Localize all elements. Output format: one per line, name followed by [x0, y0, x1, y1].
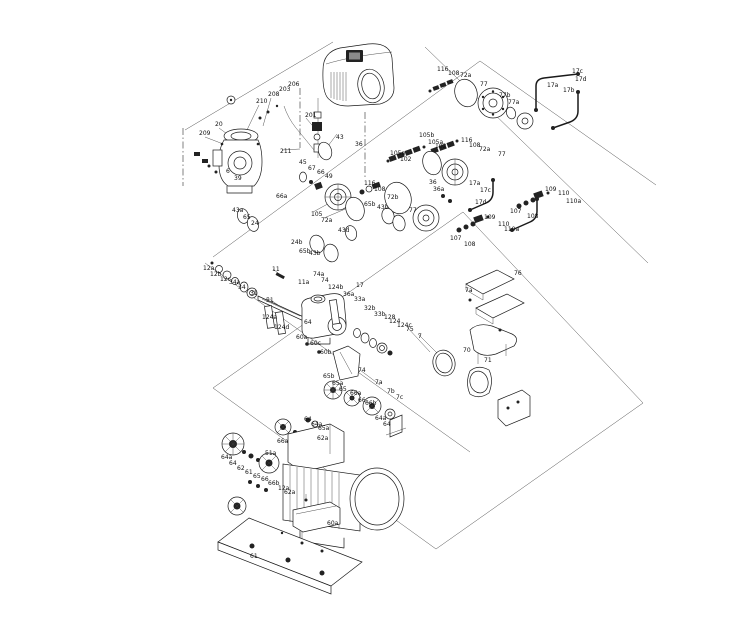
- part-label-64: 64: [304, 319, 312, 326]
- part-label-45: 45: [299, 159, 307, 166]
- part-label-11: 11: [272, 266, 280, 273]
- part-label-62a: 62a: [317, 435, 329, 442]
- part-label-65b: 65b: [323, 373, 335, 380]
- part-label-51a: 51a: [265, 450, 277, 457]
- part-label-110: 110: [558, 190, 570, 197]
- part-label-65: 65: [339, 386, 347, 393]
- part-label-20: 20: [215, 121, 223, 128]
- part-label-39: 39: [234, 175, 242, 182]
- part-label-110a: 110a: [566, 198, 581, 205]
- part-label-109: 109: [484, 214, 496, 221]
- part-label-43b: 43b: [377, 204, 389, 211]
- part-label-77b: 77b: [499, 92, 511, 99]
- part-label-6: 6: [226, 168, 230, 175]
- diagram-canvas: 20920210208203206201211639433643a6524456…: [0, 0, 752, 632]
- part-label-105b: 105b: [419, 132, 434, 139]
- part-label-24b: 24b: [291, 239, 303, 246]
- part-label-64: 64: [229, 460, 237, 467]
- part-label-210: 210: [256, 98, 268, 105]
- part-label-72a: 72a: [479, 146, 491, 153]
- part-label-43b: 43b: [309, 250, 321, 257]
- part-label-24: 24: [251, 220, 259, 227]
- part-label-65a: 65a: [318, 425, 330, 432]
- part-label-43d: 43d: [338, 227, 350, 234]
- part-label-64: 64: [383, 421, 391, 428]
- part-label-36a: 36a: [433, 186, 445, 193]
- part-label-72a: 72a: [321, 217, 333, 224]
- part-label-49: 49: [325, 173, 333, 180]
- part-label-66: 66: [317, 169, 325, 176]
- part-label-77: 77: [498, 151, 506, 158]
- part-label-74: 74: [358, 367, 366, 374]
- row1-flange-and-pipes: [429, 72, 581, 130]
- part-label-36: 36: [355, 141, 363, 148]
- part-label-62a: 62a: [284, 489, 296, 496]
- part-label-7a: 7a: [465, 287, 473, 294]
- part-label-60a: 60a: [327, 520, 339, 527]
- part-label-65b: 65b: [364, 201, 376, 208]
- part-label-76: 76: [514, 270, 522, 277]
- part-label-66a: 66a: [276, 193, 288, 200]
- exploded-parts-diagram: 20920210208203206201211639433643a6524456…: [0, 0, 752, 632]
- part-label-17: 17: [356, 282, 364, 289]
- part-label-108: 108: [374, 186, 386, 193]
- part-label-201: 201: [305, 112, 317, 119]
- part-label-124d: 124d: [274, 324, 289, 331]
- part-label-74: 74: [321, 277, 329, 284]
- row3-coupling: [386, 348, 530, 437]
- part-label-211: 211: [280, 148, 292, 155]
- part-label-66a: 66a: [350, 390, 362, 397]
- part-label-11a: 11a: [298, 279, 310, 286]
- part-label-43: 43: [336, 134, 344, 141]
- part-label-72a: 72a: [460, 72, 472, 79]
- mle-motor-drawing: [323, 44, 394, 106]
- part-label-17a: 17a: [547, 82, 559, 89]
- part-label-66a: 66a: [277, 438, 289, 445]
- part-label-109: 109: [545, 186, 557, 193]
- part-label-17c: 17c: [572, 68, 583, 75]
- part-label-72b: 72b: [387, 194, 399, 201]
- part-label-60c: 60c: [310, 340, 321, 347]
- part-label-65: 65: [243, 214, 251, 221]
- part-label-34: 34: [238, 284, 246, 291]
- part-label-70: 70: [463, 347, 471, 354]
- part-label-17b: 17b: [563, 87, 575, 94]
- part-label-208: 208: [268, 91, 280, 98]
- part-label-209: 209: [199, 130, 211, 137]
- part-label-17c: 17c: [480, 187, 491, 194]
- part-label-7c: 7c: [396, 394, 403, 401]
- part-label-62: 62: [237, 465, 245, 472]
- part-label-108: 108: [527, 213, 539, 220]
- part-label-107: 107: [510, 208, 522, 215]
- part-label-77: 77: [480, 81, 488, 88]
- part-label-33a: 33a: [354, 296, 366, 303]
- part-label-61: 61: [250, 553, 258, 560]
- part-label-51: 51: [266, 297, 274, 304]
- part-label-36a: 36a: [343, 291, 355, 298]
- part-label-43a: 43a: [232, 207, 244, 214]
- part-label-102: 102: [435, 143, 447, 150]
- part-label-108: 108: [464, 241, 476, 248]
- part-label-7: 7: [418, 333, 422, 340]
- part-label-17d: 17d: [575, 76, 587, 83]
- part-label-102: 102: [400, 156, 412, 163]
- part-label-77a: 77a: [508, 99, 520, 106]
- part-label-108: 108: [448, 70, 460, 77]
- part-label-17d: 17d: [475, 199, 487, 206]
- part-label-67: 67: [308, 165, 316, 172]
- part-label-77: 77: [409, 207, 417, 214]
- part-label-7b: 7b: [387, 388, 395, 395]
- part-label-75: 75: [406, 326, 414, 333]
- part-label-124a: 124a: [262, 314, 277, 321]
- part-label-60a: 60a: [296, 334, 308, 341]
- part-label-124b: 124b: [328, 284, 343, 291]
- part-label-107: 107: [450, 235, 462, 242]
- part-label-7a: 7a: [375, 379, 383, 386]
- coupling-guards: [466, 270, 524, 364]
- part-label-206: 206: [288, 81, 300, 88]
- part-label-31: 31: [250, 290, 258, 297]
- part-label-65: 65: [253, 473, 261, 480]
- part-label-71: 71: [484, 357, 492, 364]
- part-label-60b: 60b: [320, 349, 332, 356]
- part-label-110a: 110a: [504, 226, 519, 233]
- part-label-116: 116: [437, 66, 449, 73]
- part-label-36: 36: [429, 179, 437, 186]
- part-label-17a: 17a: [469, 180, 481, 187]
- part-label-66b: 66b: [365, 400, 377, 407]
- part-label-61: 61: [245, 469, 253, 476]
